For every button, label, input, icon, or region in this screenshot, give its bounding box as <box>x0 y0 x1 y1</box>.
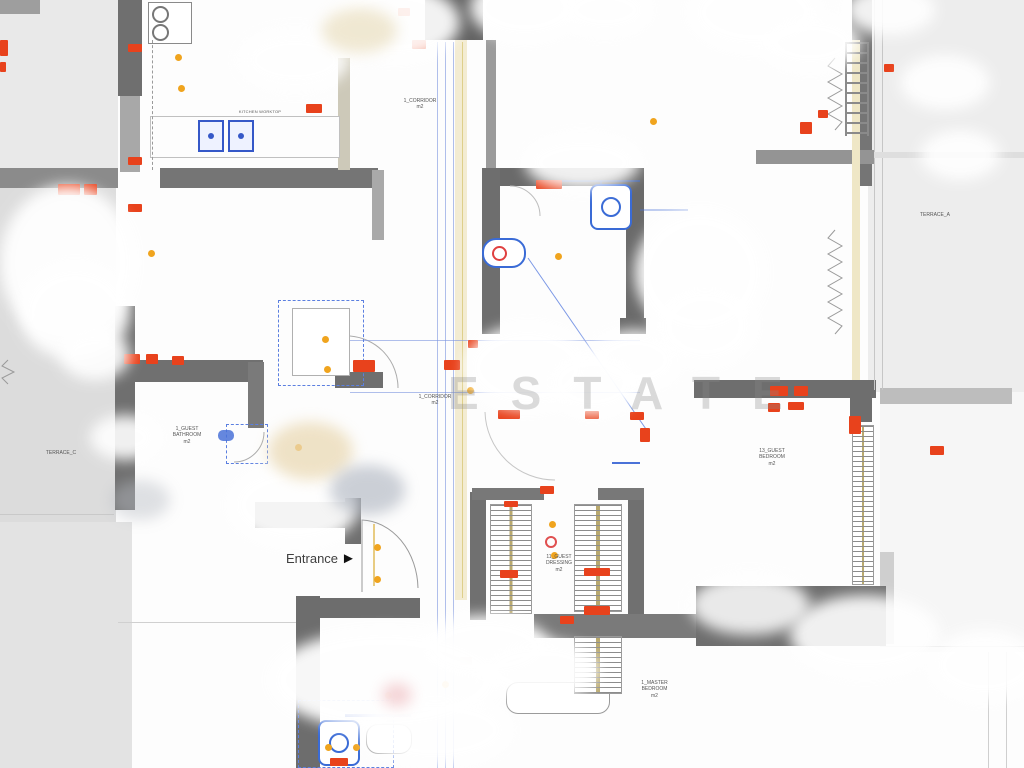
red-annotation-marker <box>500 570 518 578</box>
kitchen-note-label: KITCHEN WORKTOP <box>200 109 320 114</box>
light-fixture-dot <box>442 681 449 688</box>
red-annotation-marker <box>58 184 80 195</box>
detail-line <box>988 652 989 768</box>
watermark-text: ESTATE <box>448 366 815 420</box>
red-annotation-marker <box>172 356 184 365</box>
red-annotation-marker <box>930 446 944 455</box>
red-circle-marker <box>545 536 557 548</box>
light-fixture-dot <box>148 250 155 257</box>
room-label-guest-bedroom: 13_GUESTBEDROOMm2 <box>732 448 812 467</box>
light-fixture-dot <box>325 744 332 751</box>
detail-line <box>880 646 1024 647</box>
detail-line <box>118 622 296 623</box>
kitchen-sink-icon <box>198 120 224 152</box>
entrance-label: Entrance <box>286 551 338 566</box>
red-annotation-marker <box>818 110 828 118</box>
stove-icon <box>148 2 192 44</box>
red-annotation-marker <box>412 40 426 49</box>
light-fixture-dot <box>385 692 392 699</box>
red-annotation-marker <box>540 486 554 494</box>
red-annotation-marker <box>536 180 562 189</box>
detail-line <box>0 514 114 515</box>
red-annotation-marker <box>0 62 6 72</box>
light-fixture-dot <box>324 366 331 373</box>
red-annotation-marker <box>800 122 812 134</box>
kitchen-sink-icon <box>228 120 254 152</box>
red-annotation-marker <box>0 40 8 56</box>
red-annotation-marker <box>884 64 894 72</box>
basin-icon <box>482 238 526 268</box>
red-annotation-marker <box>146 354 158 364</box>
red-annotation-marker <box>468 340 478 348</box>
red-annotation-marker <box>398 8 410 16</box>
red-annotation-marker <box>330 758 348 766</box>
light-fixture-dot <box>650 118 657 125</box>
light-fixture-dot <box>175 54 182 61</box>
detail-line <box>612 462 640 464</box>
detail-line <box>882 0 883 390</box>
wardrobe-hatching <box>852 425 874 585</box>
entrance-arrow-icon: ► <box>341 551 356 566</box>
red-annotation-marker <box>849 416 861 434</box>
red-annotation-marker <box>504 501 518 507</box>
red-annotation-marker <box>128 44 142 52</box>
red-annotation-marker <box>353 360 375 372</box>
dashed-annotation-box <box>278 300 364 386</box>
room-label-terrace-a: TERRACE_A <box>900 212 970 218</box>
red-annotation-marker <box>640 428 650 442</box>
counter-edge-line <box>152 40 153 170</box>
light-fixture-dot <box>374 544 381 551</box>
room-label-guest-bathroom: 1_GUESTBATHROOMm2 <box>152 426 222 445</box>
light-fixture-dot <box>549 521 556 528</box>
detail-line <box>874 0 875 390</box>
detail-line <box>874 152 1024 158</box>
dashed-annotation-box <box>226 424 268 464</box>
detail-line <box>462 42 463 598</box>
red-annotation-marker <box>128 204 142 212</box>
light-fixture-dot <box>178 85 185 92</box>
red-annotation-marker <box>124 354 140 364</box>
ladder-icon <box>845 42 869 136</box>
detail-line <box>350 340 640 341</box>
red-annotation-marker <box>84 184 97 195</box>
toilet-icon <box>590 184 632 230</box>
light-fixture-dot <box>322 336 329 343</box>
light-fixture-dot <box>555 253 562 260</box>
red-annotation-marker <box>128 157 142 165</box>
red-annotation-marker <box>460 657 472 665</box>
room-label-guest-dressing: 11_GUESTDRESSINGm2 <box>524 554 594 573</box>
red-annotation-marker <box>584 606 610 615</box>
red-annotation-marker <box>560 616 574 624</box>
light-fixture-dot <box>374 576 381 583</box>
entrance-marker: Entrance ► <box>286 551 356 566</box>
light-fixture-dot <box>295 444 302 451</box>
room-label-corridor-upper: 1_CORRIDORm2 <box>380 98 460 111</box>
detail-line <box>1006 652 1007 768</box>
floor-plan: 1_CORRIDORm2 1_CORRIDORm2 TERRACE_A TERR… <box>0 0 1024 768</box>
light-fixture-dot <box>353 744 360 751</box>
room-label-terrace-c: TERRACE_C <box>26 450 96 456</box>
room-label-master-bedroom: 1_MASTERBEDROOMm2 <box>612 680 697 699</box>
